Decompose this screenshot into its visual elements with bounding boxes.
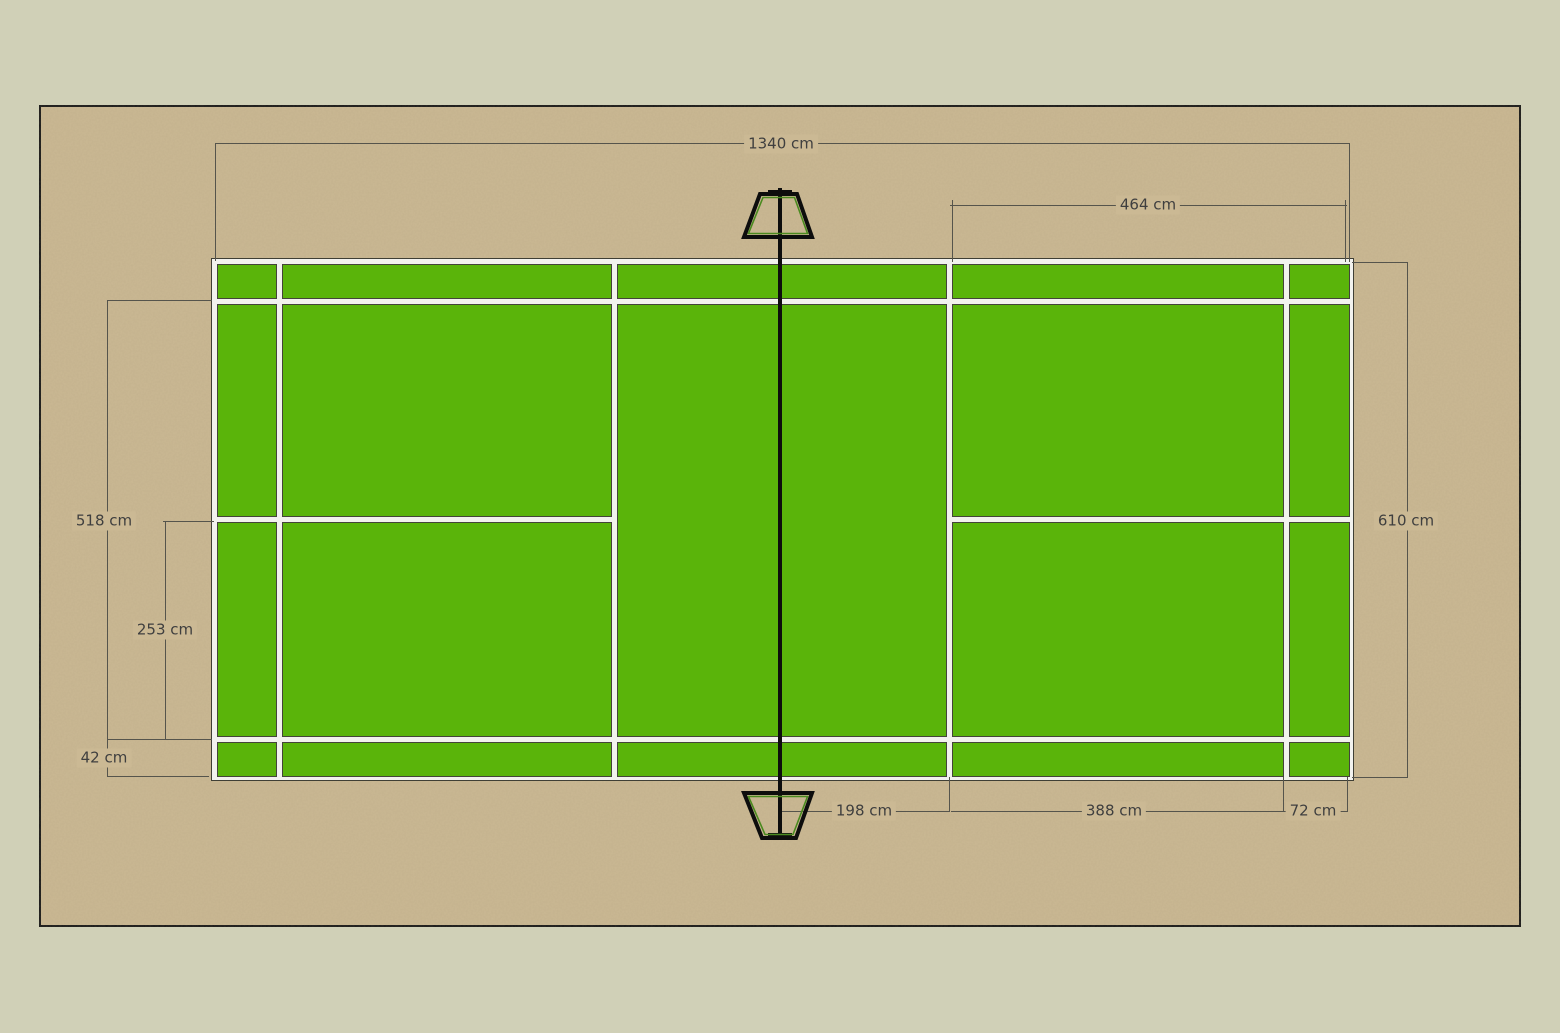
court-cell bbox=[217, 304, 277, 517]
court-cell bbox=[952, 522, 1284, 737]
court-cell bbox=[282, 742, 612, 777]
court-cell bbox=[1289, 264, 1350, 299]
page-background: 1340 cm 464 cm 518 cm 253 cm 42 cm 610 c… bbox=[0, 0, 1560, 1033]
dim-label-half-court-width: 253 cm bbox=[133, 621, 197, 640]
dimension-line bbox=[107, 300, 212, 301]
dimension-line bbox=[1349, 143, 1350, 262]
dimension-line bbox=[107, 739, 212, 740]
court-cell bbox=[217, 264, 277, 299]
court-cell bbox=[617, 264, 947, 299]
court-cell bbox=[952, 742, 1284, 777]
court-cell bbox=[282, 304, 612, 517]
court-cell bbox=[952, 304, 1284, 517]
net-post-top-icon bbox=[736, 186, 824, 242]
dimension-line bbox=[107, 776, 209, 777]
dim-label-service-length-right: 464 cm bbox=[1116, 196, 1180, 215]
dimension-line bbox=[1345, 200, 1346, 262]
dimension-line bbox=[1352, 262, 1408, 263]
dim-label-court-length: 1340 cm bbox=[744, 135, 818, 154]
court-cell bbox=[952, 264, 1284, 299]
dim-label-court-width: 610 cm bbox=[1374, 512, 1438, 531]
court-cell bbox=[617, 742, 947, 777]
court-cell bbox=[1289, 522, 1350, 737]
dimension-line bbox=[1283, 777, 1284, 812]
dimension-line bbox=[1347, 777, 1348, 812]
court-cell bbox=[1289, 742, 1350, 777]
court-cell bbox=[282, 264, 612, 299]
dimension-line bbox=[1352, 777, 1408, 778]
dim-label-net-to-short-service: 198 cm bbox=[832, 802, 896, 821]
dim-label-short-to-long-service: 388 cm bbox=[1082, 802, 1146, 821]
dim-label-back-alley: 72 cm bbox=[1286, 802, 1341, 821]
dim-label-singles-width: 518 cm bbox=[72, 512, 136, 531]
court-cell bbox=[617, 304, 947, 737]
court-cell bbox=[1289, 304, 1350, 517]
badminton-court bbox=[211, 258, 1354, 781]
dimension-line bbox=[163, 521, 214, 522]
court-cell bbox=[217, 742, 277, 777]
dim-label-alley-width: 42 cm bbox=[77, 749, 132, 768]
net-line bbox=[778, 188, 782, 839]
dimension-line bbox=[949, 777, 950, 812]
court-cell bbox=[217, 522, 277, 737]
net-post-bottom-icon bbox=[736, 788, 824, 844]
dimension-line bbox=[952, 200, 953, 262]
dimension-line bbox=[215, 143, 216, 261]
court-cell bbox=[282, 522, 612, 737]
